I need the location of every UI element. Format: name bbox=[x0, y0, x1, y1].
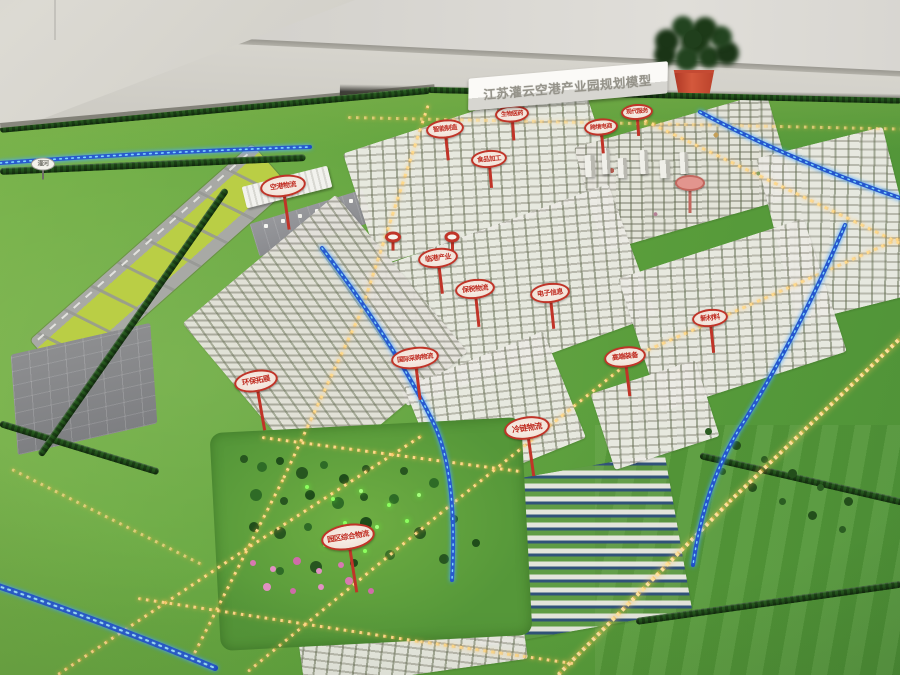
zone-sign-label: 食品加工 bbox=[470, 148, 507, 169]
zone-sign-label: 智能制造 bbox=[425, 118, 465, 141]
zone-sign: 跨境电商 bbox=[583, 117, 618, 137]
zone-sign: 食品加工 bbox=[470, 148, 507, 169]
zone-sign-label: 保税物流 bbox=[454, 277, 496, 301]
zone-sign-label: 电子信息 bbox=[529, 281, 571, 305]
road-marker-face bbox=[445, 232, 460, 243]
river-sign-label: 灌河 bbox=[31, 158, 55, 171]
sign-post bbox=[42, 169, 44, 180]
plant-foliage bbox=[684, 30, 702, 48]
river-top-right bbox=[700, 112, 900, 198]
road-marker-face bbox=[385, 232, 401, 243]
zone-sign: 新材料 bbox=[691, 307, 729, 329]
zone-sign: 保税物流 bbox=[454, 277, 496, 301]
zone-sign: 现代服务 bbox=[620, 103, 653, 121]
sign-post bbox=[689, 189, 692, 213]
river-lights bbox=[700, 112, 900, 198]
sign-back-face bbox=[675, 175, 705, 191]
sign-post bbox=[392, 241, 395, 250]
zone-sign-label: 新材料 bbox=[691, 307, 729, 329]
showroom-photo: 空港物流 智能制造 食品加工 生物医药 跨境电商 现代服务 临港产业 bbox=[0, 0, 900, 675]
river-name-sign: 灌河 bbox=[31, 158, 55, 171]
zone-sign-back bbox=[675, 175, 705, 191]
wall-seam bbox=[54, 0, 56, 40]
road-marker-sign bbox=[385, 232, 401, 243]
river-right bbox=[693, 225, 845, 565]
road-marker-sign bbox=[445, 232, 460, 243]
zone-sign: 智能制造 bbox=[425, 118, 465, 141]
zone-sign-label: 现代服务 bbox=[620, 103, 653, 121]
zone-sign: 电子信息 bbox=[529, 281, 571, 305]
zone-sign-label: 跨境电商 bbox=[583, 117, 618, 137]
sign-post bbox=[451, 241, 454, 250]
canal-bottom-left bbox=[0, 585, 215, 668]
